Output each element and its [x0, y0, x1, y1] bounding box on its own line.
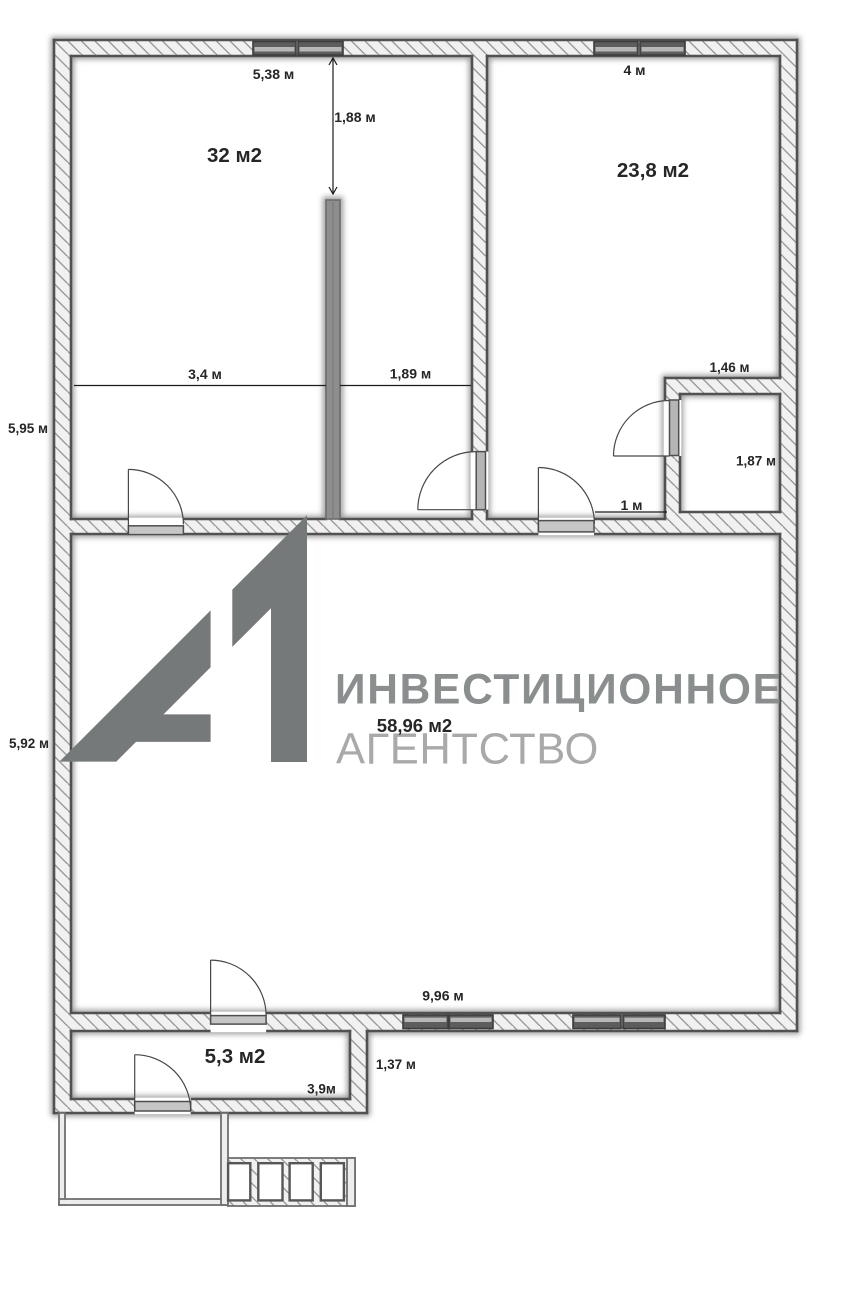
svg-text:5,38 м: 5,38 м	[253, 66, 295, 82]
svg-text:3,9м: 3,9м	[307, 1082, 336, 1097]
svg-text:1,87 м: 1,87 м	[736, 454, 776, 469]
svg-text:9,96 м: 9,96 м	[422, 988, 464, 1004]
svg-text:23,8 м2: 23,8 м2	[617, 159, 689, 182]
svg-text:5,92 м: 5,92 м	[9, 736, 49, 751]
svg-text:1,37 м: 1,37 м	[376, 1057, 416, 1072]
svg-text:1 м: 1 м	[620, 497, 642, 513]
svg-text:1,46 м: 1,46 м	[709, 360, 749, 375]
svg-text:5,95 м: 5,95 м	[8, 421, 48, 436]
svg-text:4 м: 4 м	[623, 62, 645, 78]
svg-text:1,88 м: 1,88 м	[334, 109, 376, 125]
svg-text:32 м2: 32 м2	[207, 144, 262, 167]
svg-text:58,96 м2: 58,96 м2	[377, 715, 452, 736]
svg-text:ИНВЕСТИЦИОННОЕ: ИНВЕСТИЦИОННОЕ	[335, 667, 783, 714]
svg-text:1,89 м: 1,89 м	[390, 366, 432, 382]
svg-text:АГЕНТСТВО: АГЕНТСТВО	[336, 726, 599, 774]
svg-text:5,3 м2: 5,3 м2	[205, 1045, 266, 1068]
svg-text:3,4 м: 3,4 м	[188, 366, 222, 382]
